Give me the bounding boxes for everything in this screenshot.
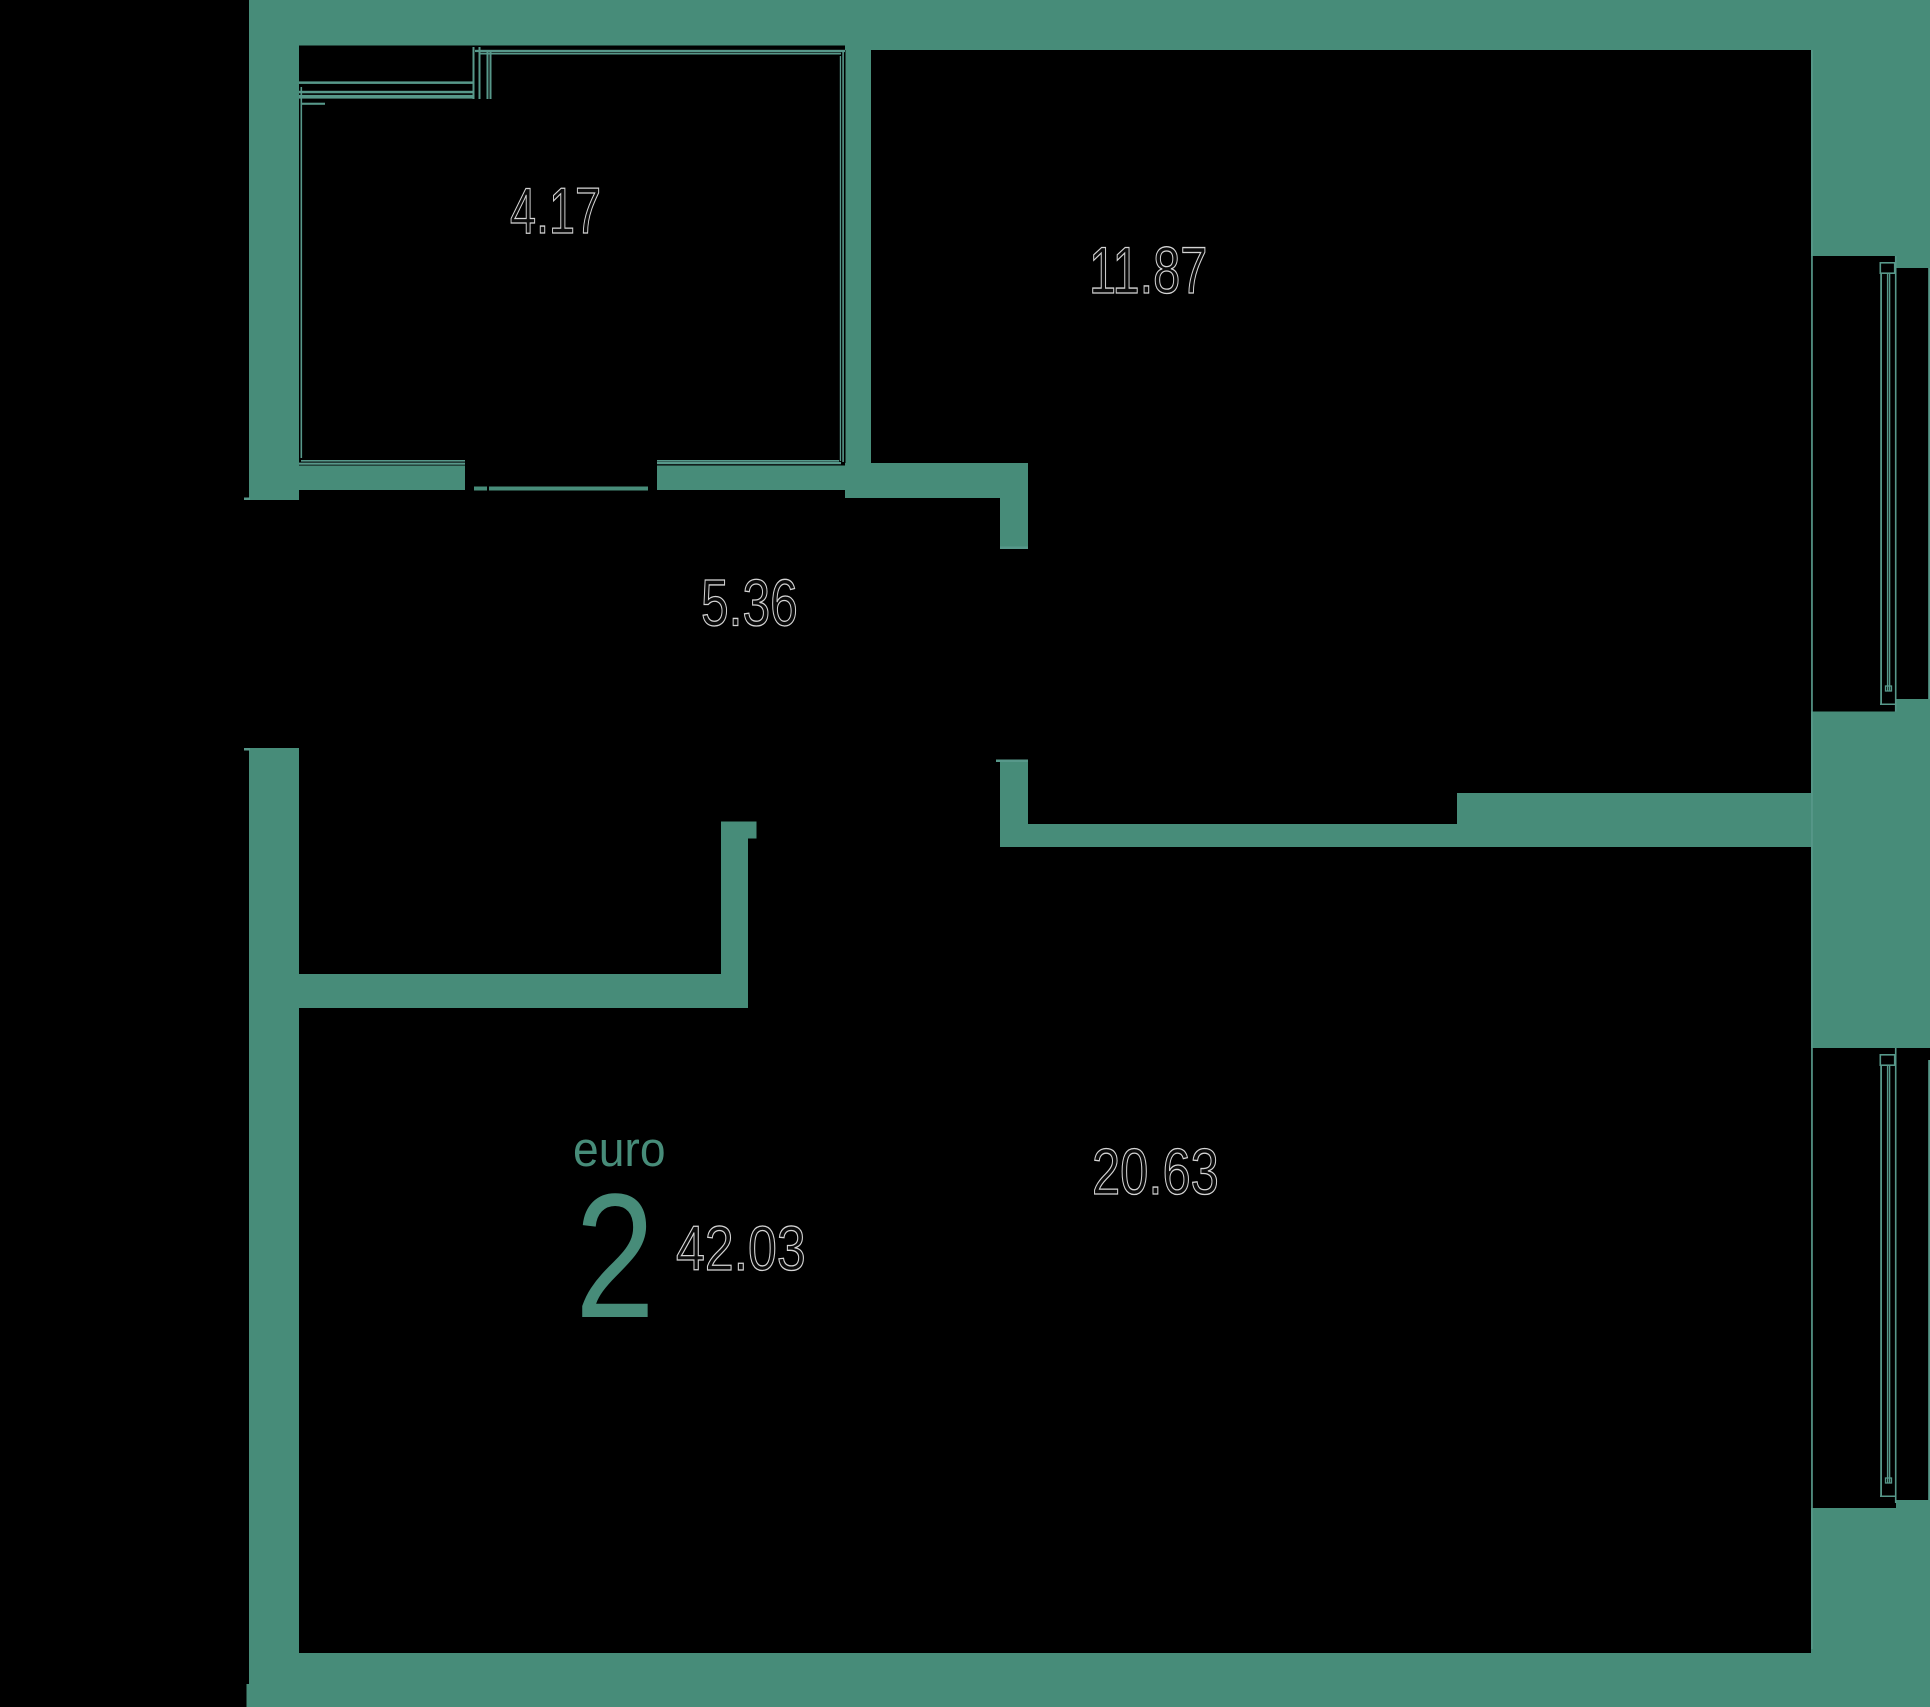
svg-text:4.17: 4.17 <box>510 175 601 247</box>
svg-text:2: 2 <box>575 1158 655 1356</box>
svg-text:5.36: 5.36 <box>701 567 798 640</box>
svg-text:11.87: 11.87 <box>1089 235 1207 308</box>
svg-text:42.03: 42.03 <box>676 1214 806 1284</box>
svg-text:20.63: 20.63 <box>1092 1136 1219 1209</box>
